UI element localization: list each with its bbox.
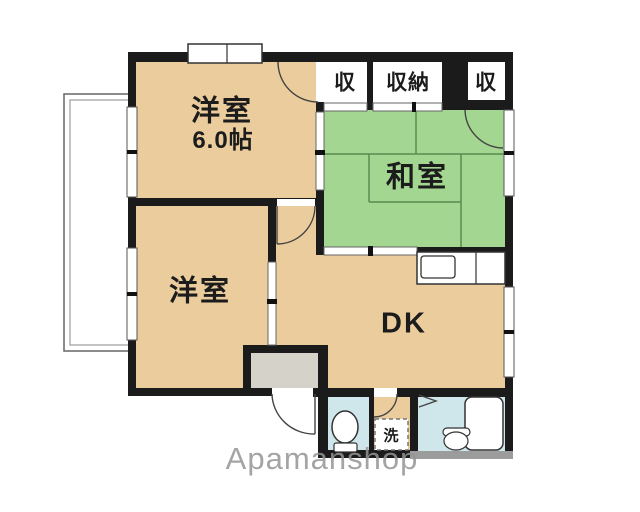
label-western-room-top: 洋室 xyxy=(191,98,253,127)
label-closet-right: 収 xyxy=(475,73,497,94)
kitchen-sink xyxy=(421,256,455,278)
entrance-floor xyxy=(251,353,318,390)
label-closet-left: 収 xyxy=(334,73,356,94)
label-closet-center: 収納 xyxy=(386,73,430,94)
label-japanese-room: 和室 xyxy=(386,164,448,193)
washbasin xyxy=(444,432,468,450)
floor-plan: 洋室 6.0帖 収 収納 収 和室 洋室 DK 洗 Apamanshop xyxy=(0,0,640,512)
label-western-room-top-size: 6.0帖 xyxy=(192,129,253,153)
label-dining-kitchen: DK xyxy=(381,310,427,339)
watermark: Apamanshop xyxy=(226,441,419,477)
wall-bath-outer xyxy=(410,451,513,459)
balcony xyxy=(64,94,133,351)
bathtub xyxy=(465,397,503,450)
kitchen-counter xyxy=(417,252,505,284)
floor-plan-drawing xyxy=(0,0,640,512)
door-entrance xyxy=(272,394,315,434)
label-western-room-bottom: 洋室 xyxy=(169,278,231,307)
